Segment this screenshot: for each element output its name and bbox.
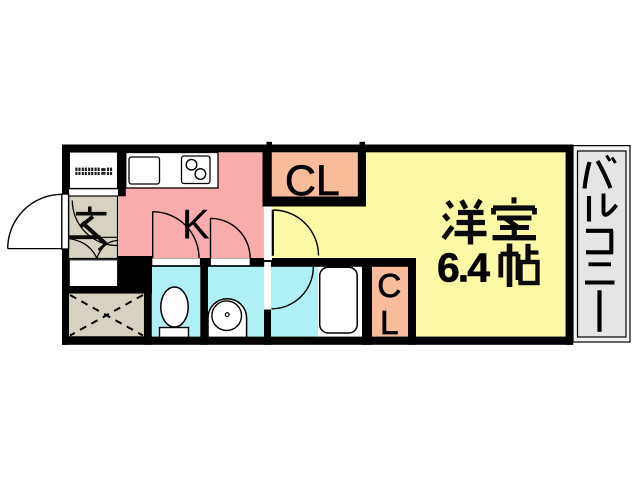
svg-text:K: K [182, 201, 210, 248]
svg-text:6.4: 6.4 [437, 245, 490, 291]
svg-text:C: C [377, 267, 401, 304]
svg-text:CL: CL [285, 157, 340, 205]
svg-text:L: L [380, 304, 398, 341]
